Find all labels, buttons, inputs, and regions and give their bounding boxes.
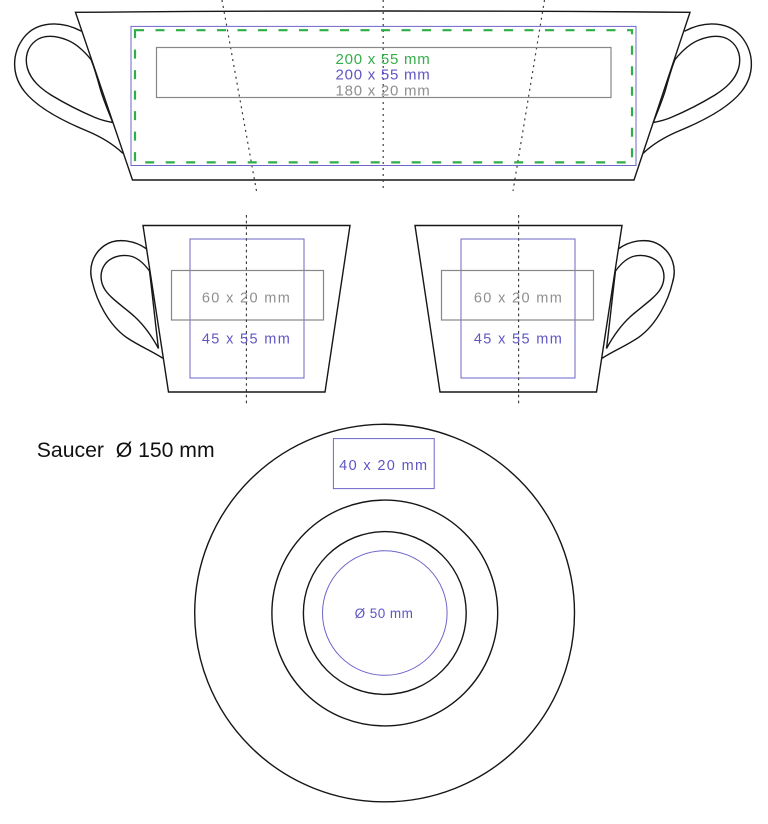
svg-text:200 x 55 mm: 200 x 55 mm: [336, 51, 431, 68]
svg-text:45 x 55 mm: 45 x 55 mm: [474, 332, 563, 348]
svg-text:40 x 20 mm: 40 x 20 mm: [339, 458, 428, 474]
svg-text:60 x 20 mm: 60 x 20 mm: [474, 291, 563, 307]
svg-text:45 x 55 mm: 45 x 55 mm: [202, 332, 291, 348]
svg-text:Ø 50 mm: Ø 50 mm: [355, 606, 414, 621]
svg-text:200 x 55 mm: 200 x 55 mm: [336, 67, 431, 84]
svg-text:60 x 20 mm: 60 x 20 mm: [202, 291, 291, 307]
svg-text:180 x 20 mm: 180 x 20 mm: [336, 83, 431, 100]
svg-text:Saucer Ø 150 mm: Saucer Ø 150 mm: [37, 439, 215, 462]
